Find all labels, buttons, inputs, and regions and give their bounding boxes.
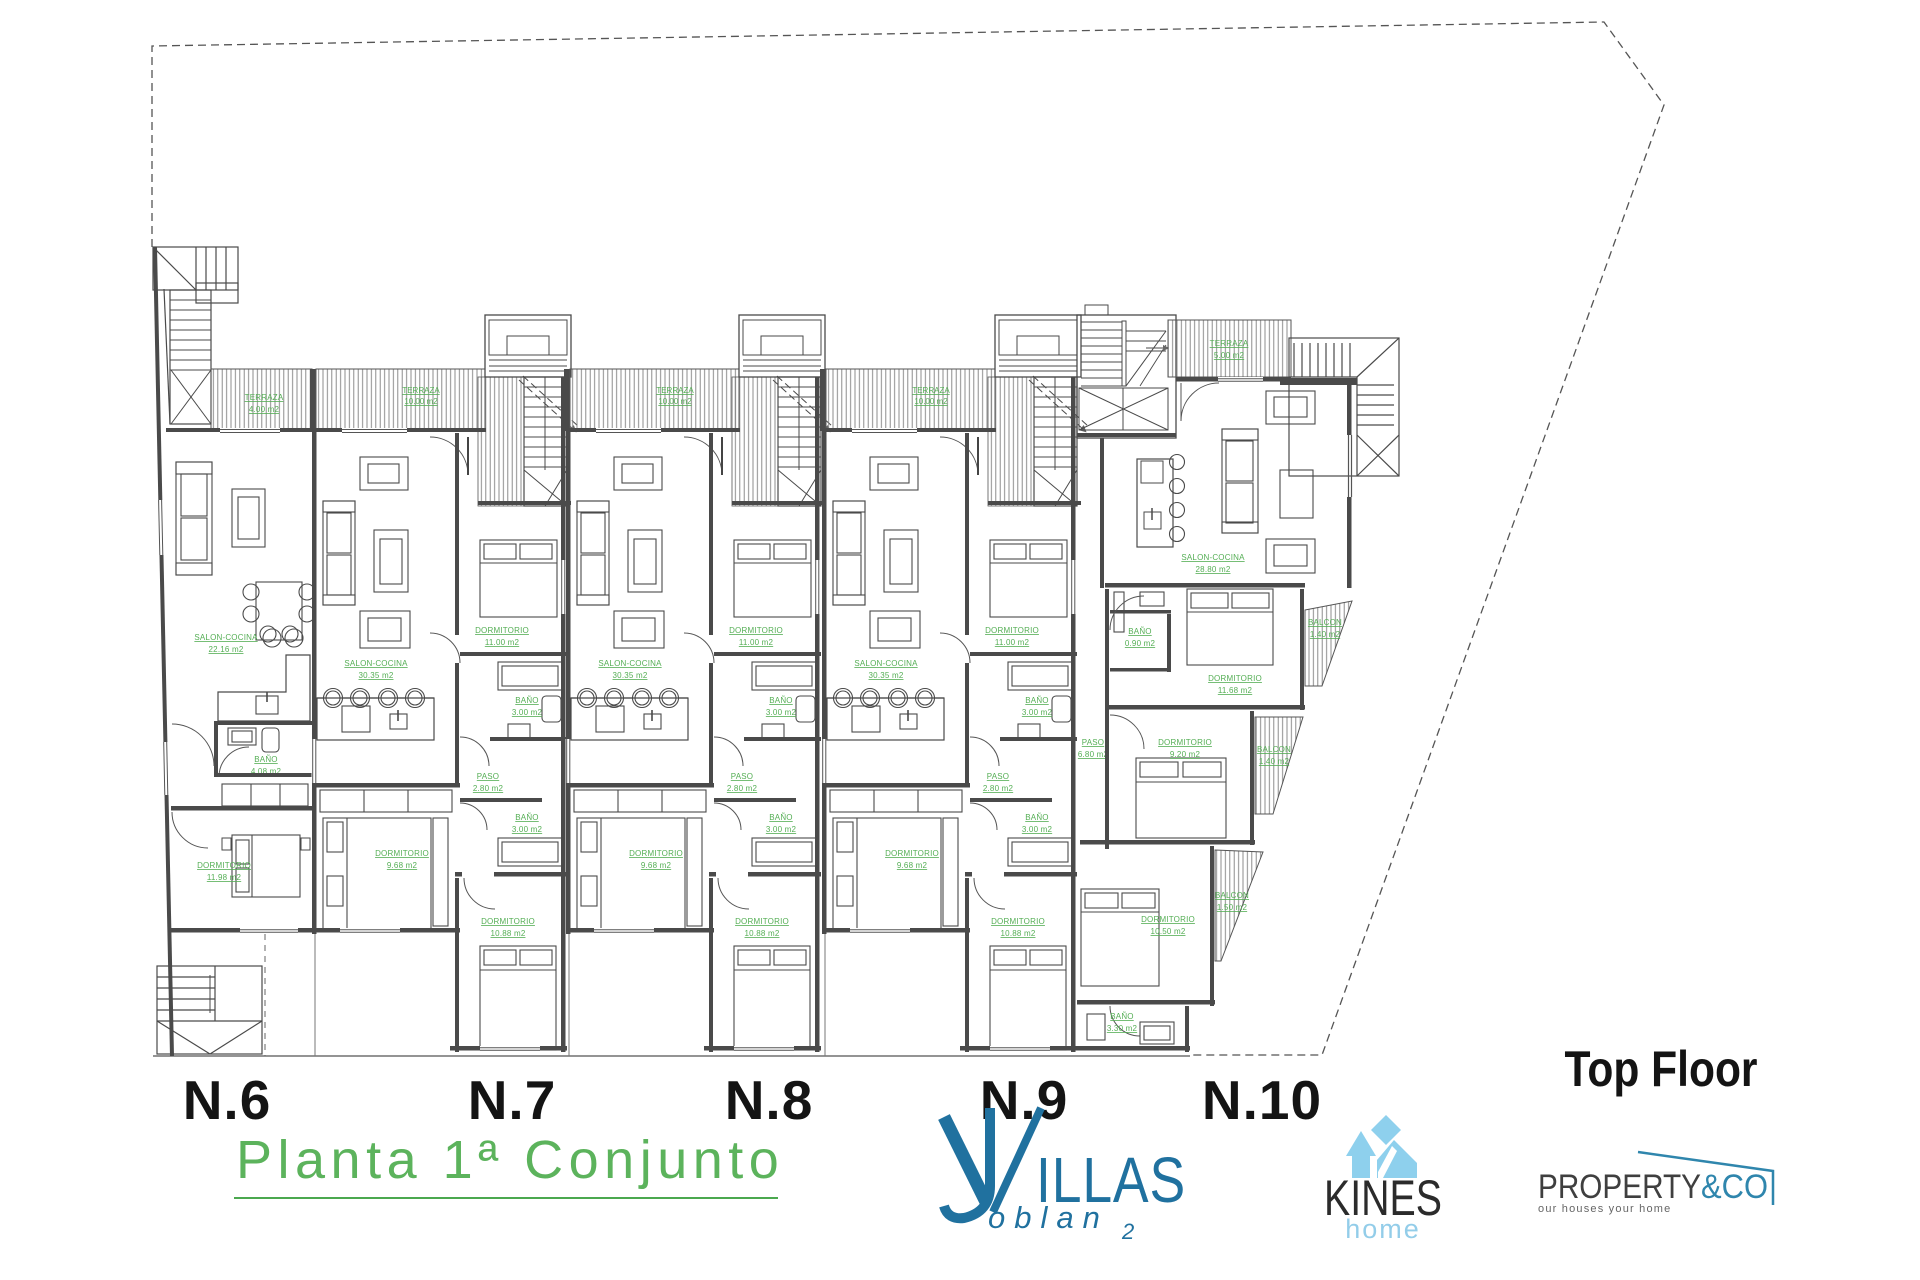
svg-text:BAÑO: BAÑO (254, 755, 277, 764)
svg-text:2: 2 (1121, 1219, 1134, 1244)
svg-text:DORMITORIO: DORMITORIO (1158, 738, 1212, 747)
svg-text:&CO: &CO (1701, 1168, 1768, 1206)
svg-text:BAÑO: BAÑO (1110, 1012, 1133, 1021)
svg-text:N.8: N.8 (725, 1069, 814, 1131)
svg-text:6.80 m2: 6.80 m2 (1078, 750, 1109, 759)
svg-text:N.6: N.6 (183, 1069, 272, 1131)
svg-text:11.68 m2: 11.68 m2 (1218, 686, 1253, 695)
svg-text:TERRAZA: TERRAZA (1210, 339, 1249, 348)
svg-text:22.16 m2: 22.16 m2 (209, 645, 244, 654)
svg-text:home: home (1345, 1214, 1421, 1244)
svg-text:BALCON: BALCON (1257, 745, 1291, 754)
svg-text:TERRAZA: TERRAZA (245, 393, 284, 402)
svg-text:PASO: PASO (1082, 738, 1104, 747)
svg-text:0.90 m2: 0.90 m2 (1125, 639, 1156, 648)
svg-text:BAÑO: BAÑO (1128, 627, 1151, 636)
svg-text:9.20 m2: 9.20 m2 (1170, 750, 1201, 759)
svg-text:1.40 m2: 1.40 m2 (1310, 630, 1341, 639)
svg-text:4.00 m2: 4.00 m2 (249, 405, 280, 414)
svg-text:our houses your home: our houses your home (1538, 1203, 1671, 1215)
svg-text:Top Floor: Top Floor (1565, 1041, 1758, 1097)
svg-text:1.40 m2: 1.40 m2 (1259, 757, 1290, 766)
svg-text:PROPERTY: PROPERTY (1538, 1168, 1701, 1206)
svg-text:Planta 1ª Conjunto: Planta 1ª Conjunto (236, 1130, 784, 1190)
svg-text:11.98 m2: 11.98 m2 (207, 873, 242, 882)
svg-text:5.00 m2: 5.00 m2 (1214, 351, 1245, 360)
svg-text:oblan: oblan (988, 1200, 1109, 1235)
svg-text:DORMITORIO: DORMITORIO (1208, 674, 1262, 683)
svg-text:3.30 m2: 3.30 m2 (1107, 1024, 1138, 1033)
svg-text:N.10: N.10 (1202, 1069, 1322, 1131)
svg-text:10.50 m2: 10.50 m2 (1151, 927, 1186, 936)
svg-text:BALCON: BALCON (1308, 618, 1342, 627)
svg-text:N.7: N.7 (468, 1069, 557, 1131)
svg-text:DORMITORIO: DORMITORIO (197, 861, 251, 870)
svg-text:SALON-COCINA: SALON-COCINA (194, 633, 258, 642)
svg-text:BALCON: BALCON (1215, 891, 1249, 900)
svg-text:1.50 m2: 1.50 m2 (1217, 903, 1248, 912)
svg-text:SALON-COCINA: SALON-COCINA (1181, 553, 1245, 562)
svg-text:28.80 m2: 28.80 m2 (1196, 565, 1231, 574)
svg-text:DORMITORIO: DORMITORIO (1141, 915, 1195, 924)
